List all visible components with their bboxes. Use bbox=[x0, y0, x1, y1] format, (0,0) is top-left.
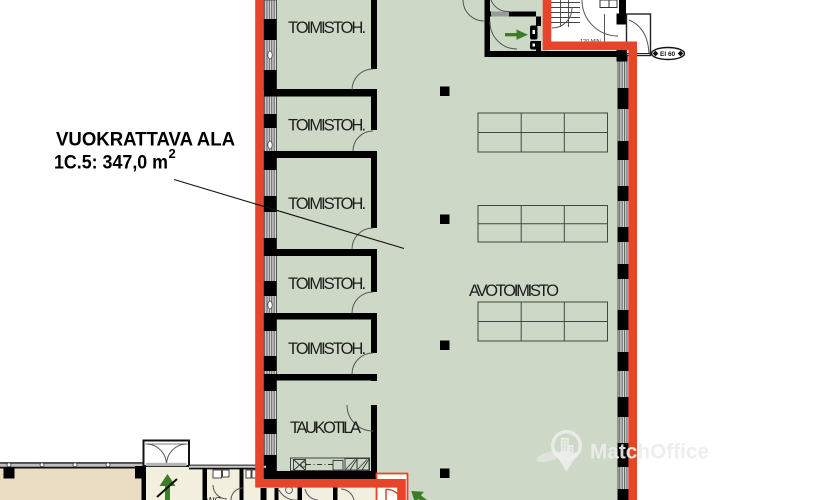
svg-text:WC: WC bbox=[206, 496, 221, 500]
svg-text:VUOKRATTAVA ALA: VUOKRATTAVA ALA bbox=[56, 129, 235, 151]
svg-text:1C.5: 347,0 m: 1C.5: 347,0 m bbox=[54, 152, 168, 174]
svg-text:TOIMISTOH.: TOIMISTOH. bbox=[288, 19, 366, 37]
svg-text:EI 60: EI 60 bbox=[660, 51, 676, 58]
svg-text:TOIMISTOH.: TOIMISTOH. bbox=[288, 340, 366, 358]
svg-text:AVOTOIMISTO: AVOTOIMISTO bbox=[469, 282, 559, 300]
svg-text:MatchOffice: MatchOffice bbox=[590, 441, 709, 464]
svg-text:TAUKOTILA: TAUKOTILA bbox=[290, 419, 361, 437]
svg-text:TOIMISTOH.: TOIMISTOH. bbox=[288, 117, 366, 135]
svg-text:2: 2 bbox=[169, 146, 176, 161]
svg-text:TOIMISTOH.: TOIMISTOH. bbox=[288, 275, 366, 293]
svg-text:TOIMISTOH.: TOIMISTOH. bbox=[288, 195, 366, 213]
